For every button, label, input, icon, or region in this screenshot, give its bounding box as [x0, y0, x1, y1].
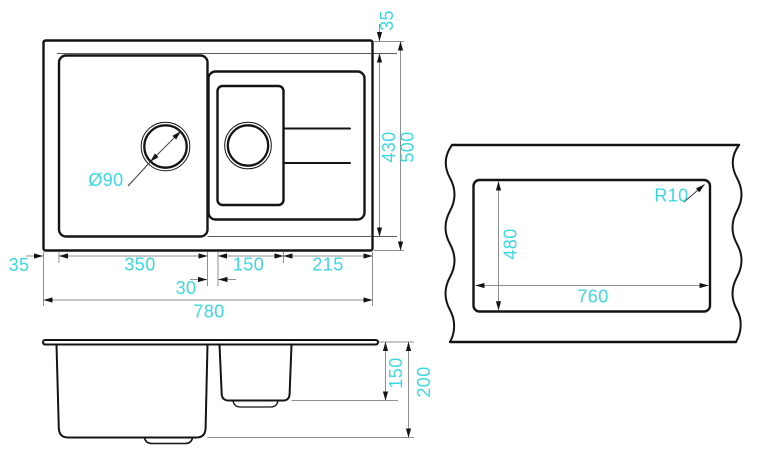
dim-label-corner-radius: R10: [654, 186, 688, 206]
small-bowl-drain-boss: [233, 401, 278, 407]
top-view: 35 350 150 215 30 780 35 430 500 Ø90: [9, 10, 418, 321]
sink-technical-drawing: 35 350 150 215 30 780 35 430 500 Ø90 150…: [0, 0, 762, 476]
dim-label-small-bowl-width: 150: [233, 255, 264, 275]
countertop-break-line-right: [733, 145, 742, 342]
dim-label-total-depth: 500: [398, 131, 418, 162]
countertop-break-line-left: [446, 145, 455, 342]
dim-label-rim-left: 35: [9, 255, 30, 275]
dim-label-main-bowl-width: 350: [124, 255, 155, 275]
small-bowl-profile: [220, 345, 292, 401]
main-bowl-profile: [57, 345, 208, 438]
dim-label-cutout-width: 760: [577, 287, 608, 307]
dim-label-main-bowl-depth: 200: [414, 366, 434, 397]
drawing-canvas: 35 350 150 215 30 780 35 430 500 Ø90 150…: [0, 0, 762, 476]
dim-label-drainer-width: 215: [312, 255, 343, 275]
dim-label-divider-width: 30: [176, 278, 197, 298]
dim-label-drain-diameter: Ø90: [88, 170, 123, 190]
sink-flange: [43, 340, 378, 345]
dim-label-inner-depth: 430: [379, 131, 399, 162]
main-bowl: [59, 56, 208, 237]
main-bowl-drain-boss: [145, 438, 193, 444]
dim-label-rim-top: 35: [377, 10, 397, 31]
dim-label-cutout-height: 480: [501, 228, 521, 259]
dim-label-small-bowl-depth: 150: [386, 357, 406, 388]
dim-label-total-width: 780: [193, 302, 224, 322]
front-view: 150 200: [43, 340, 434, 444]
cutout-view: 480 760 R10: [446, 145, 742, 342]
